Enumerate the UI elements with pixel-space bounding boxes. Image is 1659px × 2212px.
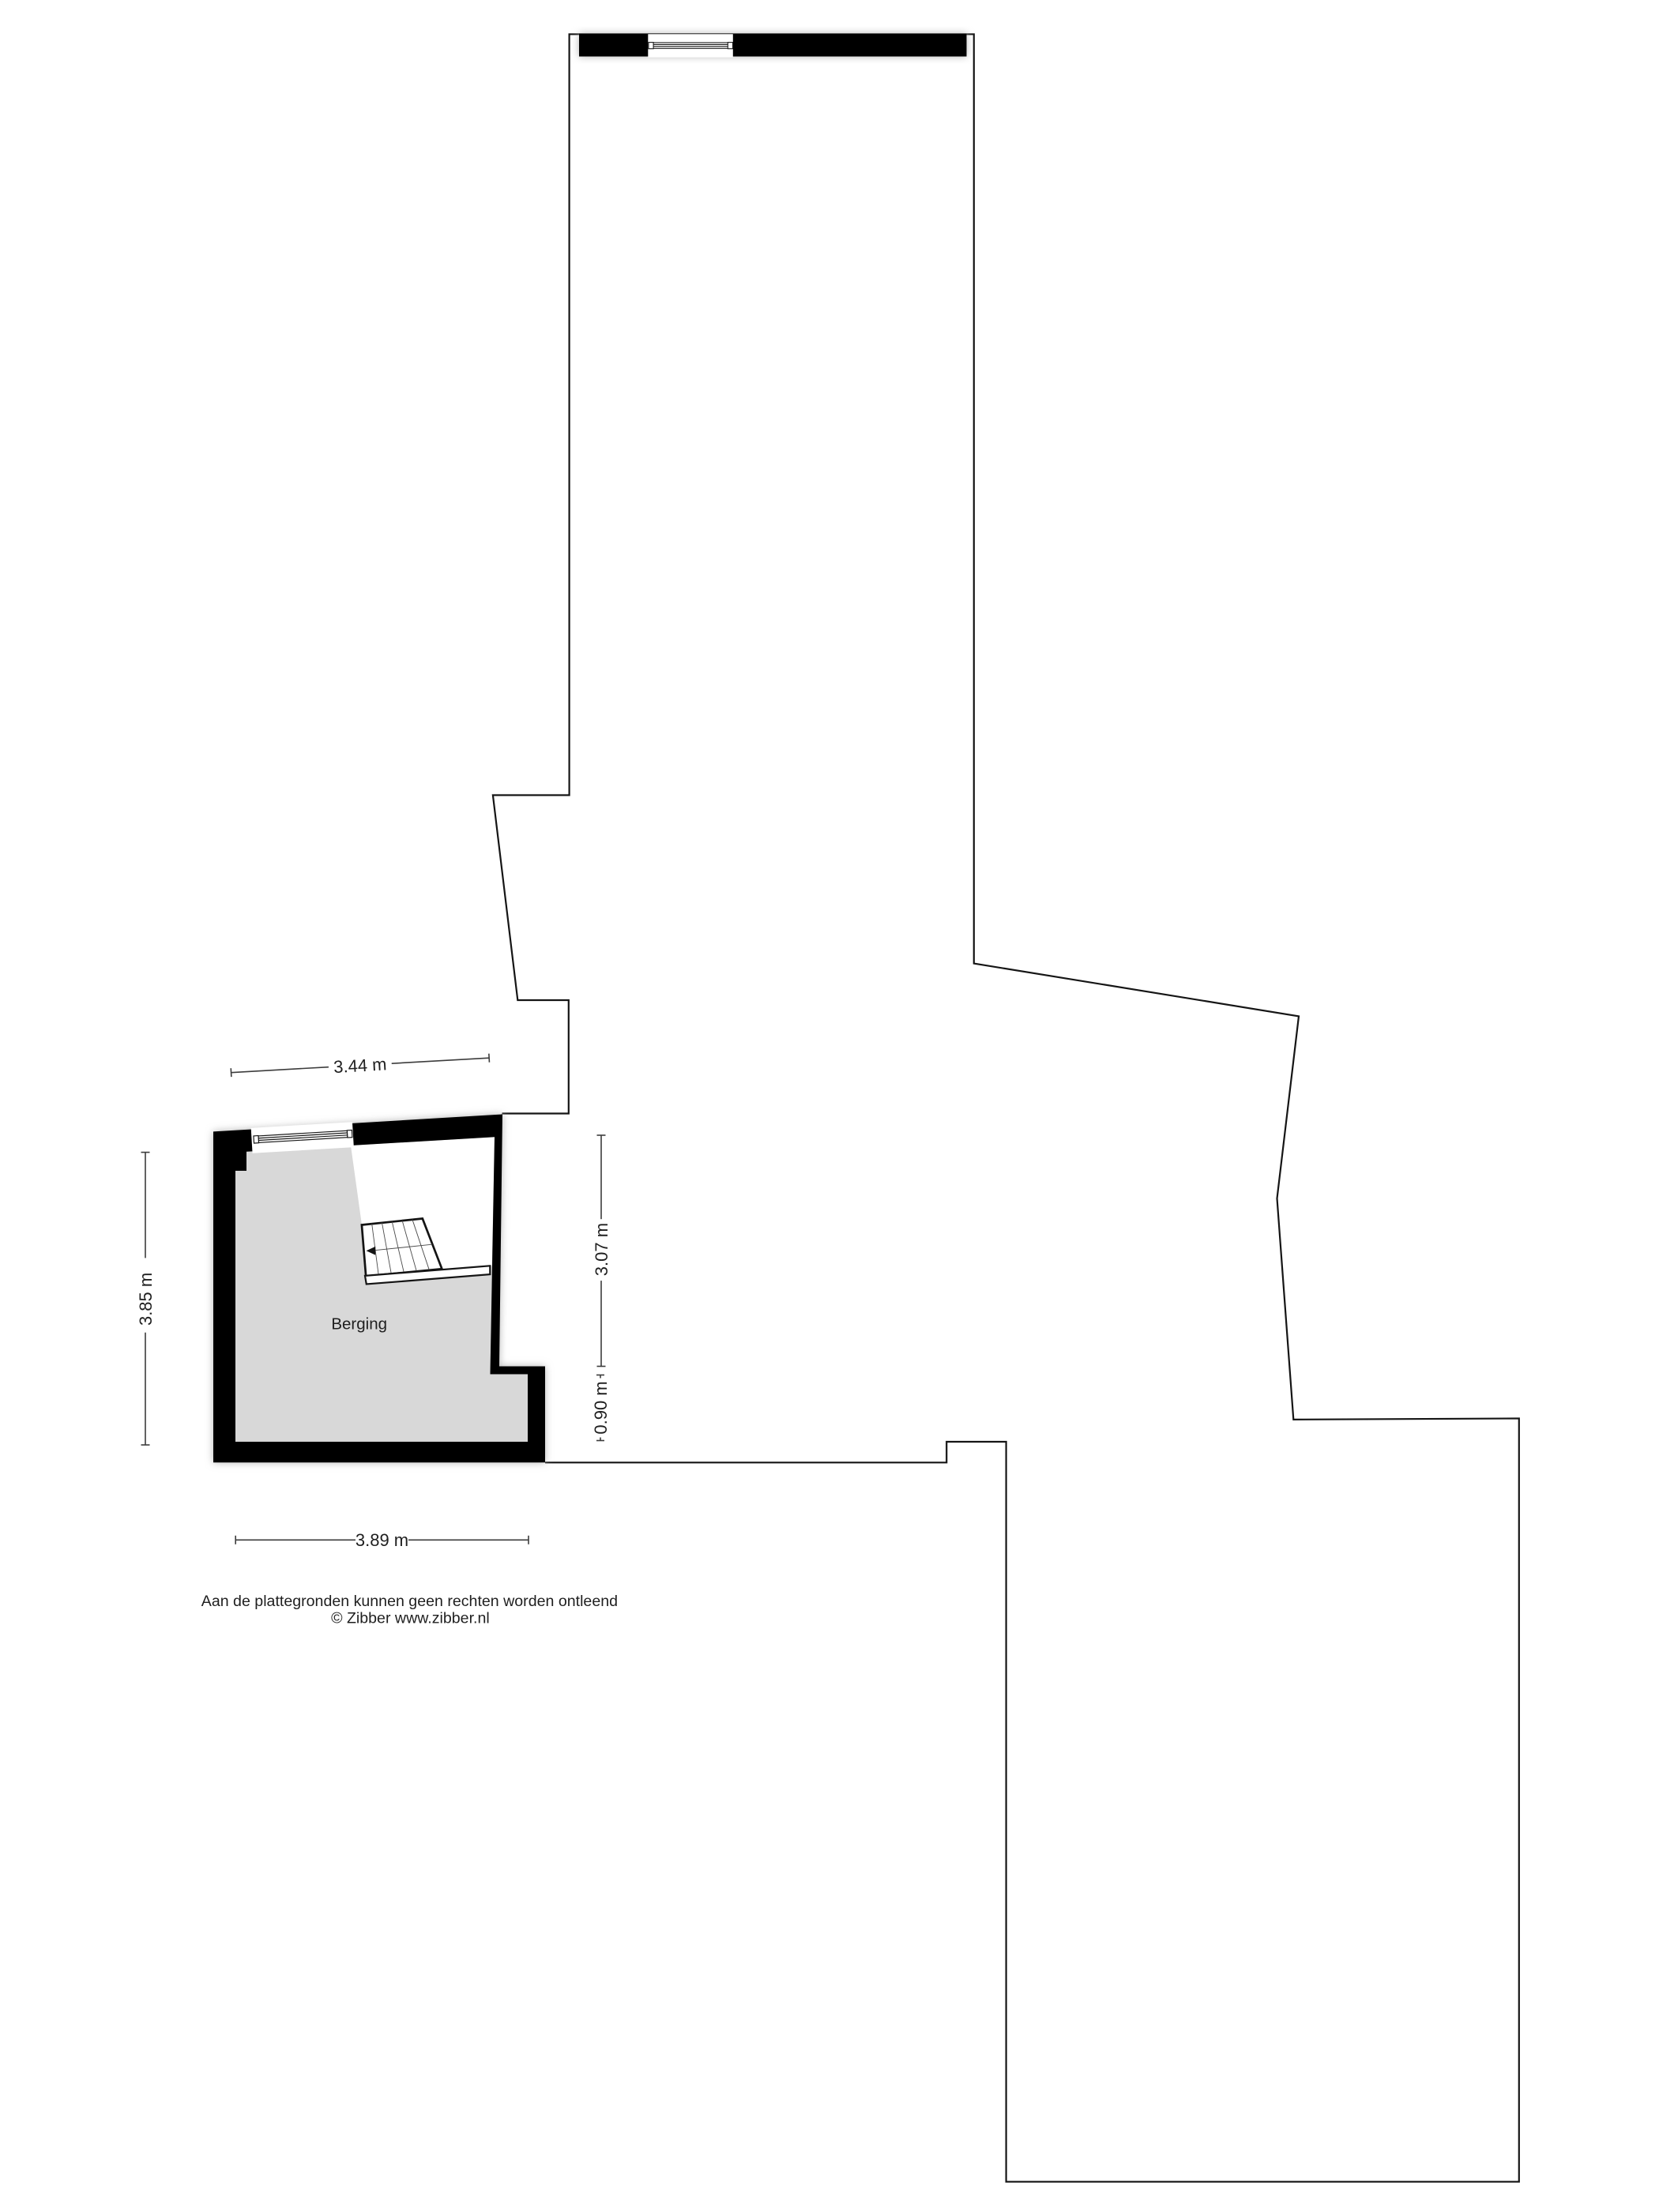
svg-text:Aan de plattegronden kunnen ge: Aan de plattegronden kunnen geen rechten… [201,1593,618,1610]
svg-text:© Zibber www.zibber.nl: © Zibber www.zibber.nl [331,1610,490,1627]
svg-text:0.90 m: 0.90 m [591,1381,611,1434]
svg-text:3.44 m: 3.44 m [333,1054,388,1077]
svg-text:3.89 m: 3.89 m [355,1530,408,1550]
svg-text:3.07 m: 3.07 m [592,1223,611,1276]
svg-text:3.85 m: 3.85 m [136,1273,156,1326]
svg-text:Berging: Berging [331,1315,387,1334]
